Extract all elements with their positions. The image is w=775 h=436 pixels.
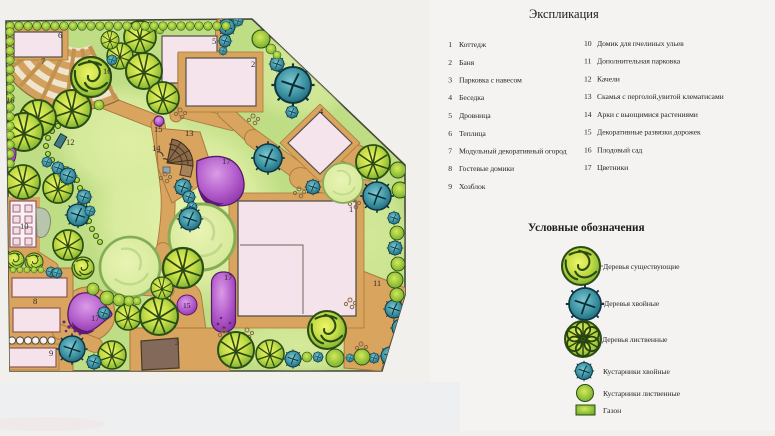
svg-text:10: 10 (20, 221, 29, 231)
svg-text:3: 3 (175, 337, 179, 347)
svg-text:Плодовый сад: Плодовый сад (597, 145, 642, 154)
svg-text:6: 6 (448, 129, 452, 138)
svg-text:Декоративные развязки дорожек: Декоративные развязки дорожек (597, 128, 701, 137)
svg-text:Деревья лиственные: Деревья лиственные (602, 335, 668, 344)
svg-text:3: 3 (448, 76, 452, 85)
svg-text:8: 8 (33, 296, 37, 306)
svg-text:9: 9 (49, 348, 53, 358)
svg-text:11: 11 (373, 278, 381, 288)
svg-text:Деревья хвойные: Деревья хвойные (604, 299, 660, 308)
svg-text:1: 1 (448, 40, 452, 49)
svg-text:16: 16 (6, 95, 15, 105)
svg-text:Скамья с перголой,увитой клема: Скамья с перголой,увитой клематисами (597, 92, 724, 101)
svg-text:16: 16 (103, 66, 112, 76)
svg-text:17: 17 (91, 313, 100, 323)
svg-text:4: 4 (448, 93, 452, 102)
svg-text:12: 12 (584, 74, 592, 83)
svg-text:Арки с вьющимися растениями: Арки с вьющимися растениями (597, 110, 698, 119)
svg-text:1: 1 (349, 204, 353, 214)
svg-text:10: 10 (584, 39, 592, 48)
svg-text:2: 2 (251, 59, 255, 69)
svg-text:16: 16 (584, 145, 592, 154)
svg-text:15: 15 (183, 301, 191, 310)
svg-text:Цветники: Цветники (597, 163, 628, 172)
svg-text:17: 17 (224, 272, 233, 282)
svg-text:5: 5 (212, 36, 216, 46)
svg-text:6: 6 (58, 30, 62, 40)
svg-text:13: 13 (185, 128, 194, 138)
svg-text:13: 13 (584, 92, 592, 101)
svg-text:Теплица: Теплица (459, 129, 486, 138)
svg-text:12: 12 (66, 137, 75, 147)
svg-text:Гостевые домики: Гостевые домики (459, 164, 514, 173)
svg-text:11: 11 (584, 57, 591, 66)
svg-text:Парковка с навесом: Парковка с навесом (459, 76, 522, 85)
svg-text:14: 14 (152, 143, 161, 153)
svg-text:Кустарники лиственные: Кустарники лиственные (603, 389, 681, 398)
svg-text:17: 17 (222, 156, 231, 166)
svg-text:Газон: Газон (603, 406, 621, 415)
svg-text:17: 17 (584, 163, 592, 172)
svg-text:14: 14 (584, 110, 592, 119)
svg-text:Кустарники хвойные: Кустарники хвойные (603, 367, 670, 376)
svg-text:15: 15 (584, 128, 592, 137)
svg-text:Экспликация: Экспликация (529, 7, 599, 21)
svg-text:Качели: Качели (597, 74, 620, 83)
svg-text:7: 7 (41, 56, 45, 66)
svg-text:2: 2 (448, 58, 452, 67)
svg-text:Условные обозначения: Условные обозначения (528, 222, 645, 234)
svg-text:7: 7 (448, 147, 452, 156)
svg-text:8: 8 (448, 164, 452, 173)
svg-text:5: 5 (448, 111, 452, 120)
svg-text:Дровница: Дровница (459, 111, 491, 120)
svg-text:15: 15 (154, 124, 163, 134)
svg-text:Баня: Баня (459, 58, 475, 67)
svg-text:Беседка: Беседка (459, 93, 485, 102)
svg-text:Коттедж: Коттедж (459, 40, 487, 49)
svg-text:Деревья существующие: Деревья существующие (603, 262, 680, 271)
svg-text:Домик для пчелиных ульев: Домик для пчелиных ульев (597, 39, 684, 48)
svg-text:9: 9 (448, 182, 452, 191)
svg-text:Дополнительная парковка: Дополнительная парковка (597, 57, 681, 66)
svg-text:Хозблок: Хозблок (459, 182, 486, 191)
svg-text:Модульный декоративный огород: Модульный декоративный огород (459, 147, 567, 156)
